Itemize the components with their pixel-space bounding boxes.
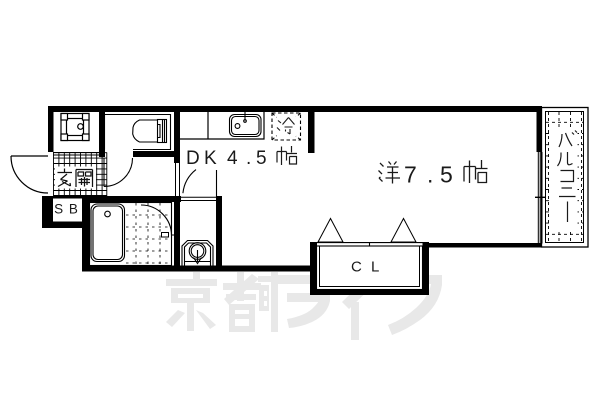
svg-text:D: D [186, 148, 200, 169]
svg-text:C L: C L [351, 259, 382, 276]
svg-text:5: 5 [440, 162, 453, 188]
svg-text:.: . [427, 162, 433, 188]
svg-text:7: 7 [404, 162, 417, 188]
svg-text:K: K [204, 148, 217, 169]
svg-text:.: . [246, 148, 251, 169]
svg-text:5: 5 [256, 148, 267, 169]
svg-text:4: 4 [227, 148, 238, 169]
svg-text:S B: S B [54, 202, 79, 217]
